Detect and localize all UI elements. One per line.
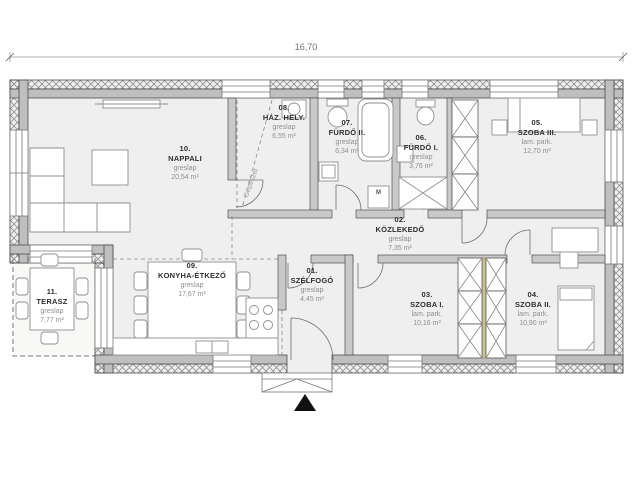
room-material: greslap — [146, 281, 238, 290]
washing-machine — [368, 186, 389, 208]
coffee-table — [92, 150, 128, 185]
room-name: TERASZ — [20, 297, 84, 307]
room-label-szoba2: 04. SZOBA II. lam. park. 10,90 m² — [498, 290, 568, 328]
room-number: 10. — [148, 144, 222, 154]
dimension-line — [6, 52, 627, 62]
room-number: 03. — [392, 290, 462, 300]
room-name: HÁZ. HELY. — [252, 113, 316, 123]
north-arrow-icon — [294, 394, 316, 411]
room-name: NAPPALI — [148, 154, 222, 164]
room-label-kozlekedo: 02. KÖZLEKEDŐ greslap 7,35 m² — [362, 215, 438, 253]
room-number: 11. — [20, 287, 84, 297]
room-name: SZOBA I. — [392, 300, 462, 310]
room-label-terasz: 11. TERASZ greslap 7,77 m² — [20, 287, 84, 325]
sink — [196, 341, 228, 353]
window-top-1 — [222, 80, 270, 98]
room-area: 17,67 m² — [146, 290, 238, 299]
room-label-konyha-etkezo: 09. KONYHA-ÉTKEZŐ greslap 17,67 m² — [146, 261, 238, 299]
room-label-nappali: 10. NAPPALI greslap 20,54 m² — [148, 144, 222, 182]
window-top-2 — [318, 80, 344, 98]
room-area: 20,54 m² — [148, 173, 222, 182]
toilet — [416, 100, 435, 125]
room-material: lam. park. — [392, 310, 462, 319]
room-material: greslap — [362, 235, 438, 244]
window-top-4 — [402, 80, 428, 98]
room-name: FÜRDŐ I. — [393, 143, 449, 153]
room-number: 02. — [362, 215, 438, 225]
room-area: 12,70 m² — [502, 147, 572, 156]
window-right-2 — [605, 226, 623, 264]
room-label-szoba1: 03. SZOBA I. lam. park. 10,16 m² — [392, 290, 462, 328]
room-label-hazhely: 08. HÁZ. HELY. greslap 6,55 m² — [252, 103, 316, 141]
room-number: 09. — [146, 261, 238, 271]
room-area: 7,77 m² — [20, 316, 84, 325]
room-area: 10,16 m² — [392, 319, 462, 328]
room-area: 6,34 m² — [317, 147, 377, 156]
wardrobe-divider-wall — [482, 258, 486, 358]
room-name: SZOBA II. — [498, 300, 568, 310]
room-area: 7,35 m² — [362, 244, 438, 253]
room-name: KONYHA-ÉTKEZŐ — [146, 271, 238, 281]
floorplan-drawing — [0, 0, 640, 480]
shower — [399, 177, 447, 209]
terrace-door — [30, 245, 92, 263]
window-bottom-2 — [388, 355, 422, 373]
room-material: greslap — [393, 153, 449, 162]
room-name: FÜRDŐ II. — [317, 128, 377, 138]
window-bottom-1 — [213, 355, 251, 373]
room-number: 05. — [502, 118, 572, 128]
room-name: KÖZLEKEDŐ — [362, 225, 438, 235]
room-material: greslap — [317, 138, 377, 147]
room-name: SZOBA III. — [502, 128, 572, 138]
room-number: 06. — [393, 133, 449, 143]
room-material: lam. park. — [498, 310, 568, 319]
room-label-szelfogo: 01. SZÉLFOGÓ greslap 4,45 m² — [280, 266, 344, 304]
room-area: 3,76 m² — [393, 162, 449, 171]
kitchen-west-window — [95, 268, 113, 348]
entrance-porch — [262, 373, 332, 392]
room-material: lam. park. — [502, 138, 572, 147]
floorplan-canvas: 16,70 Gépészet M 01. SZÉLFOGÓ greslap 4,… — [0, 0, 640, 480]
room-label-furdo2: 07. FÜRDŐ II. greslap 6,34 m² — [317, 118, 377, 156]
room-material: greslap — [252, 123, 316, 132]
window-top-3 — [362, 80, 384, 98]
room-area: 6,55 m² — [252, 132, 316, 141]
room-name: SZÉLFOGÓ — [280, 276, 344, 286]
room-material: greslap — [20, 307, 84, 316]
window-right-1 — [605, 130, 623, 182]
room-number: 01. — [280, 266, 344, 276]
radiator — [95, 100, 168, 108]
room-label-furdo1: 06. FÜRDŐ I. greslap 3,76 m² — [393, 133, 449, 171]
wardrobe-hall — [452, 100, 478, 210]
washbasin — [319, 162, 338, 181]
room-number: 04. — [498, 290, 568, 300]
dresser — [552, 228, 598, 252]
room-number: 08. — [252, 103, 316, 113]
room-material: greslap — [280, 286, 344, 295]
window-top-5 — [490, 80, 558, 98]
window-bottom-3 — [516, 355, 556, 373]
window-left — [10, 130, 28, 216]
room-label-szoba3: 05. SZOBA III. lam. park. 12,70 m² — [502, 118, 572, 156]
room-number: 07. — [317, 118, 377, 128]
room-area: 10,90 m² — [498, 319, 568, 328]
room-material: greslap — [148, 164, 222, 173]
room-area: 4,45 m² — [280, 295, 344, 304]
